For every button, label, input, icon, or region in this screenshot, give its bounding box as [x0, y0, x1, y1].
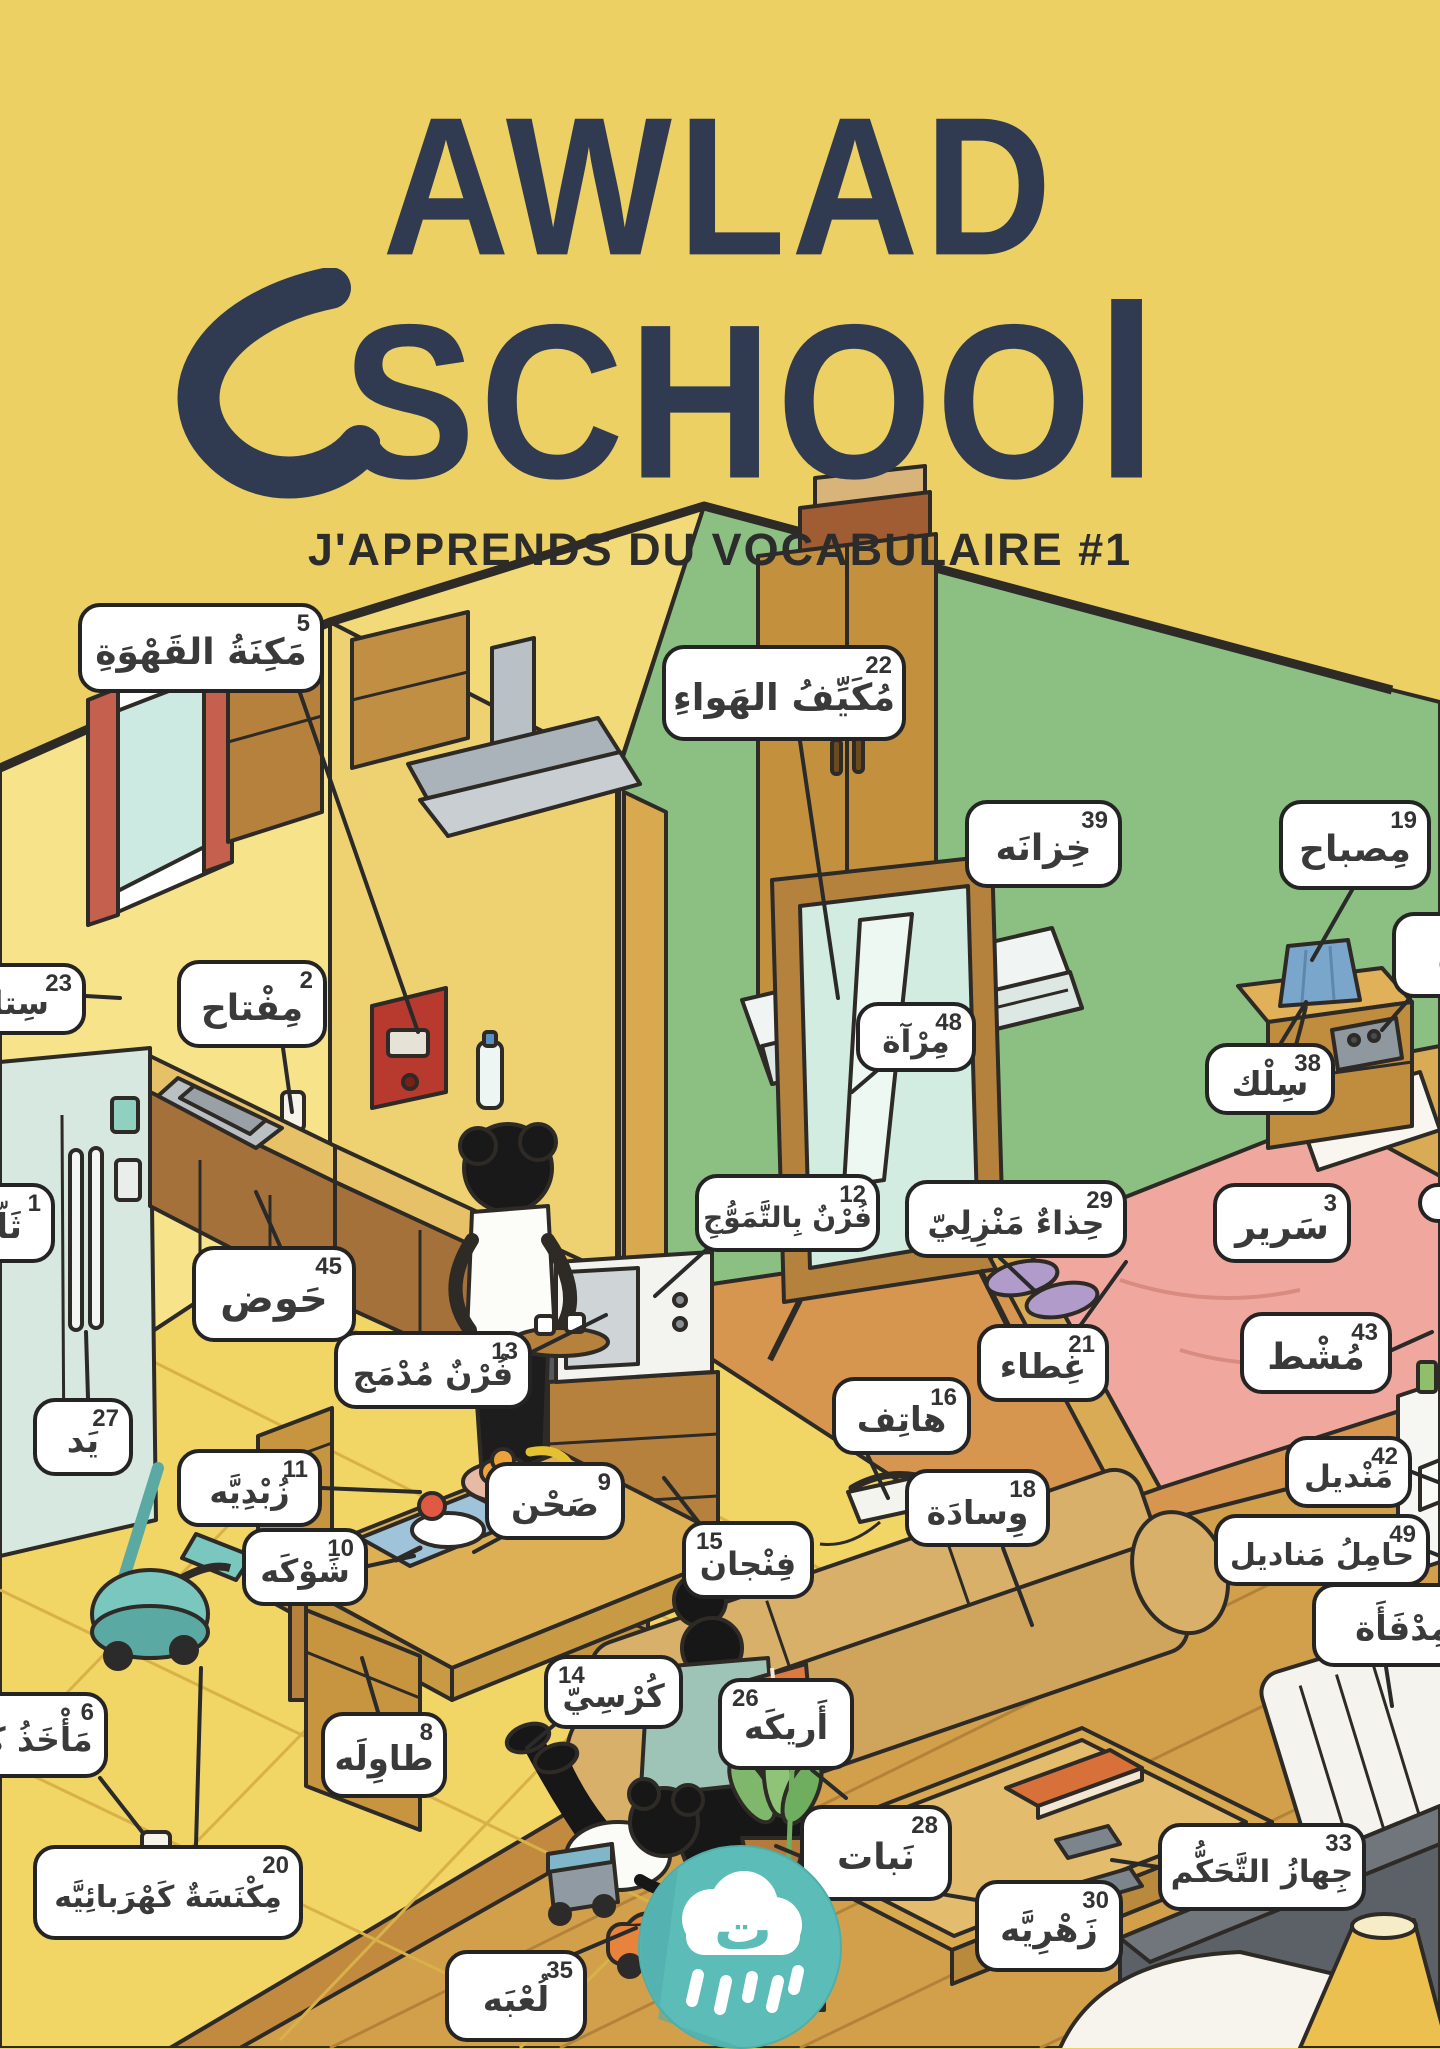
- vocab-label-hand: يَد27: [33, 1398, 133, 1476]
- vocab-word: مِصباح: [1299, 830, 1411, 870]
- vocab-word: أَريكَه: [744, 1710, 828, 1747]
- vocab-number: 13: [491, 1339, 518, 1365]
- vocab-label-tissue: مَنْديل42: [1285, 1436, 1412, 1508]
- vocab-number: 33: [1325, 1831, 1352, 1857]
- vocab-number: 48: [935, 1010, 962, 1036]
- vocab-number: 20: [262, 1853, 289, 1879]
- vocab-number: 10: [327, 1536, 354, 1562]
- vocab-word: ثَلّاجَة: [0, 1209, 22, 1246]
- vocab-number: 12: [839, 1182, 866, 1208]
- vocab-label-sofa: أَريكَه26: [718, 1678, 854, 1770]
- vocab-label-plate: صَحْن9: [485, 1462, 625, 1540]
- vocab-number: 21: [1068, 1332, 1095, 1358]
- title-swoosh-icon: [120, 268, 380, 528]
- vocab-number: 2: [300, 968, 313, 994]
- vocab-word: مِفْتاح: [201, 989, 303, 1029]
- vocab-label-chair: كُرْسِيّ14: [544, 1655, 683, 1729]
- vocab-word: سَرير: [1235, 1208, 1329, 1248]
- vocab-label-mirror: مِرْآة48: [856, 1002, 976, 1072]
- vocab-label-table: طاوِلَه8: [321, 1712, 447, 1798]
- vocab-label-phone: هاتِف16: [832, 1377, 971, 1455]
- vocab-word: حامِلُ مَناديل: [1230, 1539, 1414, 1572]
- vocab-word: صَحْن: [511, 1487, 599, 1524]
- vocab-label-partial-corner: [1418, 1183, 1440, 1223]
- vocab-number: 27: [92, 1406, 119, 1432]
- vocab-label-remote-control: جِهازُ التَّحَكُّم33: [1158, 1823, 1366, 1911]
- vocab-label-pillow: وِسادَة18: [905, 1469, 1050, 1547]
- book-cover: { "title": { "line1": "AWLAD", "line2_pr…: [0, 0, 1440, 2048]
- vocab-word: جِهازُ التَّحَكُّم: [1171, 1855, 1354, 1889]
- vocab-number: 35: [546, 1958, 573, 1984]
- vocab-label-partial-right: ه: [1392, 912, 1440, 998]
- vocab-number: 16: [930, 1385, 957, 1411]
- vocab-label-fork: شَوْكَه10: [242, 1528, 368, 1606]
- vocab-word: فُرْنٌ مُدْمَج: [353, 1357, 513, 1392]
- vocab-label-bed: سَرير3: [1213, 1183, 1351, 1263]
- vocab-word: طاوِلَه: [334, 1741, 433, 1778]
- vocab-word: مُشْط: [1267, 1338, 1364, 1378]
- vocab-label-vase: زَهْرِيَّه30: [975, 1880, 1123, 1972]
- vocab-label-house-slippers: حِذاءٌ مَنْزِلِيّ29: [905, 1180, 1127, 1258]
- vocab-label-toy: لُعْبَه35: [445, 1950, 587, 2042]
- vocab-word: زَهْرِيَّه: [1000, 1912, 1098, 1949]
- vocab-word: مَأْخَذُ كَهْـ: [0, 1722, 93, 1758]
- vocab-word: خِزانَه: [995, 829, 1091, 869]
- vocab-number: 28: [911, 1813, 938, 1839]
- vocab-word: مُكَيِّفُ الهَواءِ: [673, 678, 895, 719]
- vocab-label-heater: مِدْفَأَة: [1312, 1583, 1440, 1667]
- vocab-number: 1: [28, 1191, 41, 1217]
- vocab-number: 43: [1351, 1320, 1378, 1346]
- vocab-label-curtain: سِتارَة23: [0, 963, 86, 1035]
- vocab-label-wardrobe: خِزانَه39: [965, 800, 1122, 888]
- vocab-number: 29: [1086, 1188, 1113, 1214]
- vocab-number: 15: [696, 1529, 723, 1555]
- vocab-label-sink: حَوض45: [192, 1246, 356, 1342]
- publisher-logo: ت: [638, 1845, 842, 2049]
- vocab-word: حِذاءٌ مَنْزِلِيّ: [927, 1206, 1104, 1241]
- subtitle: J'APPRENDS DU VOCABULAIRE #1: [0, 524, 1440, 576]
- vocab-number: 8: [420, 1720, 433, 1746]
- vocab-label-cup: فِنْجان15: [682, 1521, 814, 1599]
- vocab-number: 22: [865, 653, 892, 679]
- vocab-number: 14: [558, 1663, 585, 1689]
- vocab-word: لُعْبَه: [483, 1982, 549, 2019]
- vocab-label-key: مِفْتاح2: [177, 960, 327, 1048]
- cloud-rain-icon: ت: [640, 1847, 840, 2047]
- vocab-label-blanket: غِطاء21: [977, 1324, 1109, 1402]
- vocab-number: 18: [1009, 1477, 1036, 1503]
- vocab-label-air-conditioner: مُكَيِّفُ الهَواءِ22: [662, 645, 906, 741]
- vocab-label-coffee-machine: مَكِنَةُ القَهْوَةِ5: [78, 603, 324, 693]
- vocab-number: 23: [45, 971, 72, 997]
- vocab-label-microwave-oven: فُرْنٌ بِالتَّمَوُّجِ12: [695, 1174, 880, 1252]
- vocab-label-wire: سِلْك38: [1205, 1043, 1335, 1115]
- vocab-label-vacuum-cleaner: مِكْنَسَةٌ كَهْرَبائِيَّه20: [33, 1845, 303, 1940]
- vocab-label-lamp: مِصباح19: [1279, 800, 1431, 890]
- vocab-number: 39: [1081, 808, 1108, 834]
- vocab-number: 42: [1371, 1444, 1398, 1470]
- rain-drops: [692, 1971, 798, 2009]
- vocab-label-bowl: زُبْدِيَّه11: [177, 1449, 322, 1527]
- vocab-label-comb: مُشْط43: [1240, 1312, 1392, 1394]
- vocab-number: 5: [297, 611, 310, 637]
- vocab-number: 6: [81, 1700, 94, 1726]
- vocab-number: 30: [1082, 1888, 1109, 1914]
- vocab-word: سِتارَة: [0, 986, 49, 1021]
- logo-letter: ت: [714, 1895, 772, 1963]
- vocab-word: مِكْنَسَةٌ كَهْرَبائِيَّه: [54, 1881, 282, 1914]
- vocab-label-built-in-oven: فُرْنٌ مُدْمَج13: [334, 1331, 532, 1409]
- vocab-number: 26: [732, 1686, 759, 1712]
- vocab-number: 38: [1294, 1051, 1321, 1077]
- vocab-word: زُبْدِيَّه: [209, 1475, 289, 1510]
- vocab-number: 3: [1324, 1191, 1337, 1217]
- vocab-number: 45: [315, 1254, 342, 1280]
- vocab-number: 49: [1389, 1522, 1416, 1548]
- vocab-label-tissue-holder: حامِلُ مَناديل49: [1214, 1514, 1430, 1586]
- vocab-number: 9: [598, 1470, 611, 1496]
- vocab-word: مِدْفَأَة: [1355, 1611, 1440, 1648]
- vocab-number: 11: [283, 1457, 308, 1483]
- vocab-word: نَبات: [837, 1838, 915, 1878]
- vocab-number: 19: [1390, 808, 1417, 834]
- vocab-word: حَوض: [220, 1277, 328, 1321]
- vocab-label-outlet: مَأْخَذُ كَهْـ6: [0, 1692, 108, 1778]
- vocab-label-fridge: ثَلّاجَة1: [0, 1183, 55, 1263]
- vocab-word: مَكِنَةُ القَهْوَةِ: [95, 633, 307, 673]
